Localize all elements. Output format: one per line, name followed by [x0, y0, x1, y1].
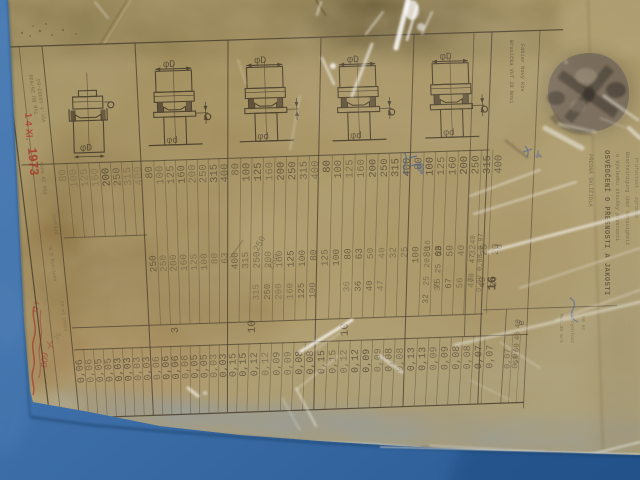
svg-text:100: 100 — [308, 282, 318, 298]
svg-text:φd: φd — [257, 131, 269, 142]
svg-text:400: 400 — [310, 161, 322, 180]
svg-text:φD: φD — [254, 56, 266, 67]
svg-text:0,15: 0,15 — [239, 353, 250, 377]
svg-text:250: 250 — [287, 161, 299, 180]
svg-text:200: 200 — [276, 162, 288, 181]
svg-text:250: 250 — [263, 284, 273, 300]
svg-text:0,12: 0,12 — [261, 352, 272, 376]
svg-text:125: 125 — [253, 162, 265, 181]
svg-text:1 4 XI.: 1 4 XI. — [22, 113, 34, 141]
svg-text:315: 315 — [240, 251, 251, 269]
svg-text:50: 50 — [365, 247, 376, 259]
svg-text:200: 200 — [367, 159, 379, 178]
svg-text:0,09: 0,09 — [362, 349, 373, 373]
svg-text:25: 25 — [423, 276, 432, 286]
svg-text:0,07: 0,07 — [474, 345, 485, 369]
svg-text:φd: φd — [166, 135, 178, 146]
svg-text:40: 40 — [377, 247, 388, 259]
svg-text:0,15: 0,15 — [317, 350, 328, 374]
svg-text:32: 32 — [388, 247, 399, 259]
svg-text:40: 40 — [456, 244, 467, 256]
svg-text:32: 32 — [422, 294, 431, 304]
svg-text:80: 80 — [322, 160, 334, 173]
svg-text:160: 160 — [264, 162, 276, 181]
svg-text:0,09: 0,09 — [272, 352, 283, 376]
svg-text:φD: φD — [163, 60, 175, 71]
svg-text:315: 315 — [252, 284, 262, 300]
svg-text:0,08: 0,08 — [463, 345, 474, 369]
svg-text:36: 36 — [434, 281, 443, 291]
svg-text:50: 50 — [445, 245, 456, 257]
svg-text:100: 100 — [297, 250, 308, 267]
svg-text:φD: φD — [80, 143, 92, 154]
svg-text:20: 20 — [423, 258, 432, 268]
svg-text:40: 40 — [365, 280, 375, 291]
svg-text:0,13: 0,13 — [418, 347, 429, 371]
svg-text:80: 80 — [342, 248, 353, 260]
svg-text:16: 16 — [424, 240, 433, 250]
svg-text:20: 20 — [435, 245, 444, 255]
svg-text:125: 125 — [436, 157, 448, 176]
svg-text:125: 125 — [320, 249, 331, 266]
svg-text:315: 315 — [390, 158, 402, 177]
svg-text:0,09: 0,09 — [441, 346, 452, 370]
svg-text:36: 36 — [342, 281, 352, 292]
svg-text:200: 200 — [274, 283, 284, 299]
svg-text:0,12: 0,12 — [351, 349, 362, 373]
svg-text:80: 80 — [308, 249, 319, 261]
svg-text:0,09: 0,09 — [284, 351, 295, 375]
svg-text:315: 315 — [299, 161, 311, 180]
svg-text:160: 160 — [448, 156, 460, 175]
svg-text:0,08: 0,08 — [295, 351, 306, 375]
svg-text:250: 250 — [251, 251, 262, 269]
svg-text:100: 100 — [331, 249, 342, 266]
svg-text:0,12: 0,12 — [340, 349, 351, 373]
svg-text:3: 3 — [171, 327, 182, 334]
svg-text:25: 25 — [399, 246, 410, 258]
svg-text:4.N: 4.N — [31, 300, 41, 313]
svg-text:100: 100 — [425, 157, 437, 176]
svg-text:160: 160 — [285, 283, 295, 299]
svg-text:250: 250 — [379, 158, 391, 177]
svg-text:100: 100 — [333, 160, 345, 179]
svg-text:125: 125 — [344, 159, 356, 178]
svg-text:100: 100 — [241, 163, 253, 182]
svg-text:25: 25 — [434, 263, 443, 273]
svg-text:125: 125 — [297, 283, 307, 299]
svg-text:63: 63 — [354, 248, 365, 260]
svg-text:1973: 1973 — [25, 147, 41, 176]
svg-text:0,08: 0,08 — [452, 346, 463, 370]
svg-text:100: 100 — [410, 246, 421, 263]
svg-text:0,07: 0,07 — [485, 345, 496, 369]
svg-text:47: 47 — [376, 280, 386, 291]
svg-text:0,09: 0,09 — [429, 346, 440, 370]
svg-text:10: 10 — [247, 320, 259, 333]
svg-text:125: 125 — [285, 250, 296, 267]
svg-text:67: 67 — [444, 278, 454, 289]
svg-text:600: 600 — [39, 352, 50, 368]
svg-text:3y: 3y — [53, 332, 61, 340]
svg-text:160: 160 — [356, 159, 368, 178]
svg-text:36: 36 — [354, 281, 364, 292]
svg-text:0,12: 0,12 — [250, 352, 261, 376]
svg-text:0,13: 0,13 — [407, 347, 418, 371]
svg-text:0,09: 0,09 — [373, 348, 384, 372]
svg-text:40″: 40″ — [415, 162, 425, 174]
svg-text:400: 400 — [229, 252, 240, 270]
svg-text:56: 56 — [455, 278, 465, 289]
